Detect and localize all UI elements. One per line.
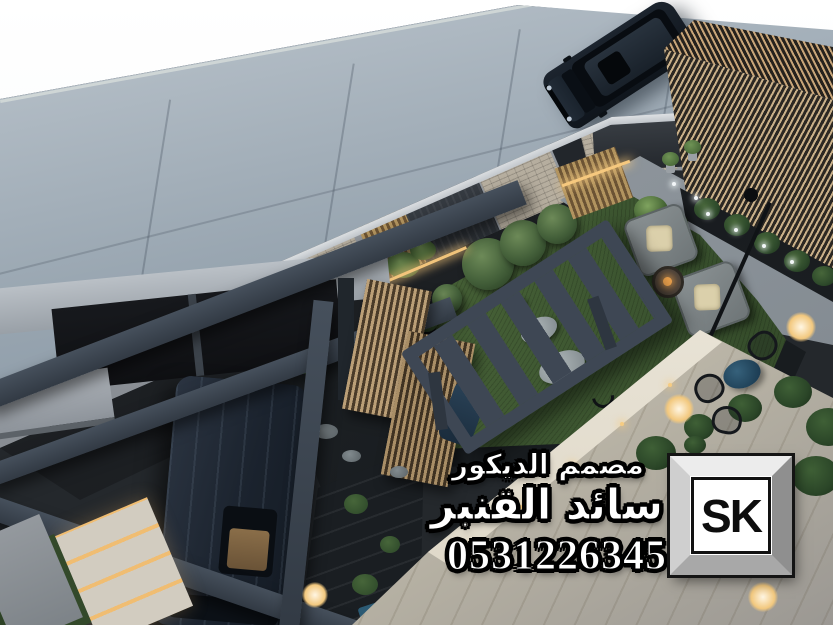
designer-name-text: سائد القنبر <box>430 480 663 529</box>
logo-text: SK <box>701 489 761 543</box>
profession-text: مصمم الديكور <box>452 448 644 481</box>
watermark-overlay: مصمم الديكور سائد القنبر 0531226345 SK <box>0 0 833 625</box>
sk-logo-badge: SK <box>670 456 792 575</box>
phone-number-text: 0531226345 <box>447 532 667 580</box>
render-canvas: مصمم الديكور سائد القنبر 0531226345 SK <box>0 0 833 625</box>
badge-inner-square: SK <box>691 477 771 554</box>
